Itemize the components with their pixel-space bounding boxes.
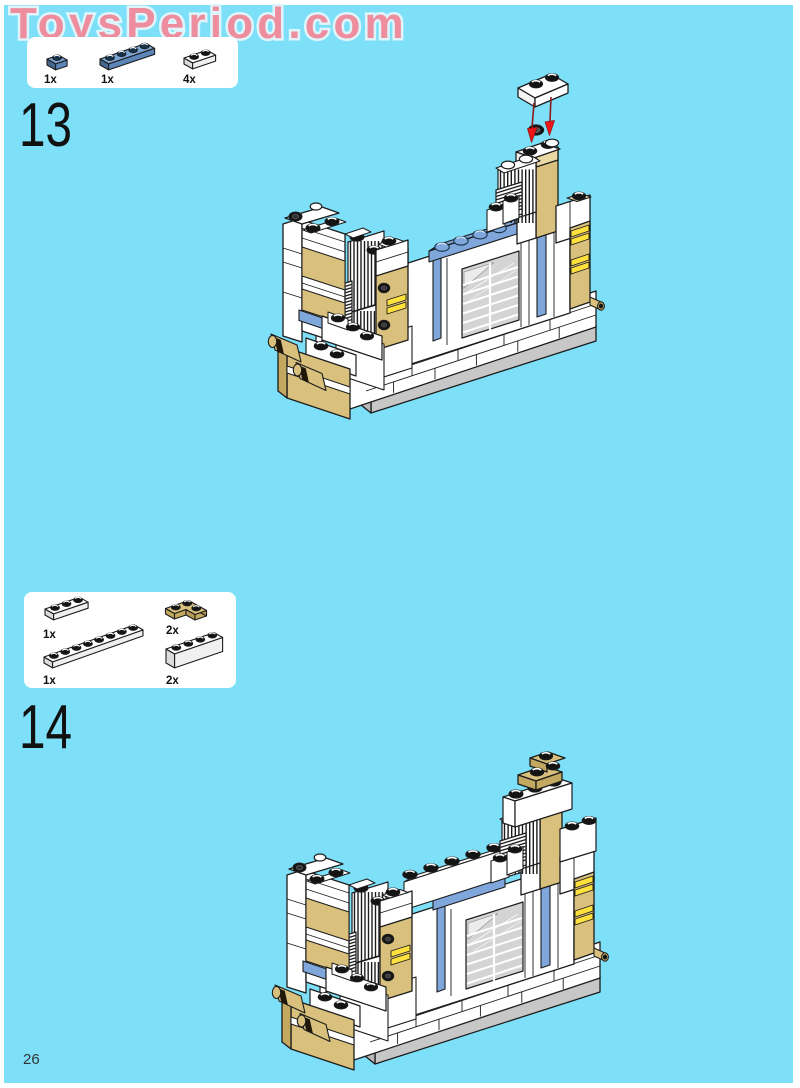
svg-text:4x: 4x [183, 74, 196, 86]
svg-text:13: 13 [19, 91, 72, 160]
svg-text:1x: 1x [43, 675, 56, 687]
svg-text:26: 26 [23, 1051, 40, 1068]
svg-text:2x: 2x [166, 625, 179, 637]
svg-text:2x: 2x [166, 675, 179, 687]
svg-text:14: 14 [19, 693, 72, 762]
svg-text:1x: 1x [101, 74, 114, 86]
svg-text:1x: 1x [44, 74, 57, 86]
svg-text:1x: 1x [43, 629, 56, 641]
